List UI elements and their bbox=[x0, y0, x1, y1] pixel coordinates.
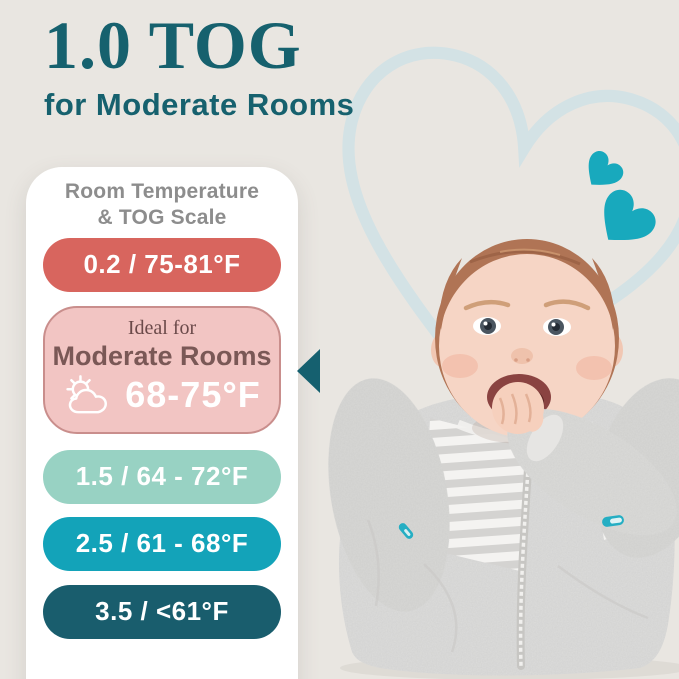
baby-illustration bbox=[311, 239, 679, 676]
ideal-label: Ideal for bbox=[45, 317, 279, 340]
left-eye-highlight bbox=[484, 322, 488, 326]
headline-block: 1.0 TOG for Moderate Rooms bbox=[44, 10, 354, 123]
room-label: Moderate Rooms bbox=[45, 341, 279, 372]
nostril bbox=[514, 358, 518, 362]
tog-row-2-5: 2.5 / 61 - 68°F bbox=[43, 517, 281, 571]
large-heart-icon bbox=[587, 184, 661, 257]
card-title-line1: Room Temperature bbox=[65, 180, 259, 203]
tog-scale-card: Room Temperature & TOG Scale 0.2 / 75-81… bbox=[26, 167, 298, 679]
page-subtitle: for Moderate Rooms bbox=[44, 87, 354, 123]
card-title: Room Temperature & TOG Scale bbox=[43, 179, 281, 232]
left-cheek bbox=[442, 354, 478, 378]
page-title: 1.0 TOG bbox=[44, 10, 354, 81]
temp-row: 68-75°F bbox=[45, 374, 279, 416]
nostril bbox=[526, 358, 530, 362]
tog-row-1-0-highlight: Ideal for Moderate Rooms 68-75°F bbox=[43, 306, 281, 434]
temp-label: 68-75°F bbox=[125, 374, 260, 416]
nose bbox=[511, 348, 533, 364]
right-cheek bbox=[576, 356, 612, 380]
tog-row-3-5: 3.5 / <61°F bbox=[43, 585, 281, 639]
small-heart-icon bbox=[577, 147, 627, 196]
ideal-pointer-icon bbox=[297, 349, 320, 393]
tog-row-0-2: 0.2 / 75-81°F bbox=[43, 238, 281, 292]
tog-row-1-5: 1.5 / 64 - 72°F bbox=[43, 450, 281, 504]
right-eye-highlight bbox=[552, 323, 556, 327]
sun-behind-cloud-icon bbox=[63, 374, 117, 416]
card-title-line2: & TOG Scale bbox=[97, 206, 226, 229]
product-infographic: 1.0 TOG for Moderate Rooms Room Temperat… bbox=[0, 0, 679, 679]
